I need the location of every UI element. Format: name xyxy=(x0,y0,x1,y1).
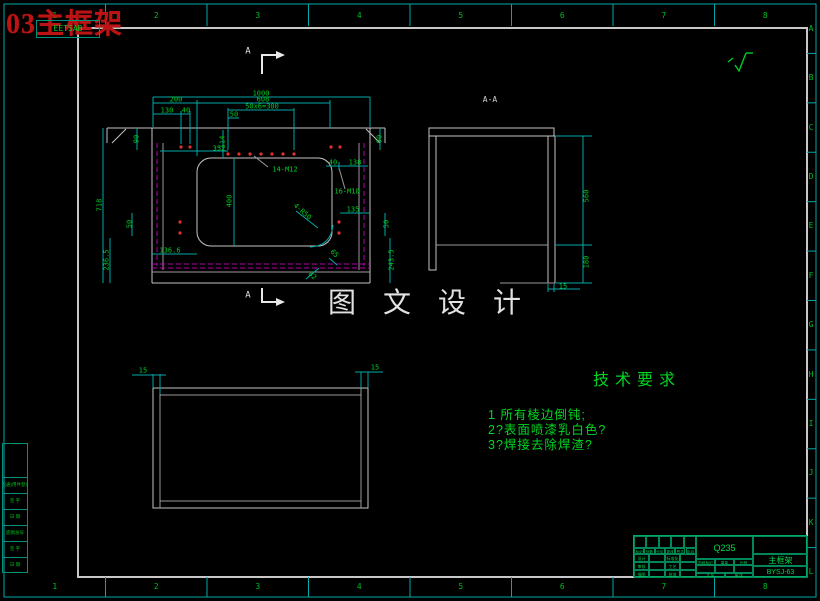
titleblock-cell xyxy=(671,536,683,548)
grid-ref: L xyxy=(809,568,814,576)
dim-label: 90 xyxy=(134,135,141,143)
dim-label: 40 xyxy=(329,160,337,167)
titleblock-cell xyxy=(659,536,671,548)
grid-ref: 7 xyxy=(661,583,666,591)
dim-label: 180 xyxy=(584,256,591,269)
titleblock-cell: 描图 xyxy=(634,570,649,578)
bottom-view xyxy=(132,372,383,508)
titleblock-cell xyxy=(649,562,665,570)
grid-ref: 2 xyxy=(154,583,159,591)
grid-ref: 7 xyxy=(661,12,666,20)
dim-label: A-A xyxy=(483,96,497,104)
titleblock-cell xyxy=(646,536,658,548)
titleblock-cell: 第 张 xyxy=(725,573,754,578)
dim-label: 50 xyxy=(230,112,238,119)
dim-label: 15 xyxy=(139,368,147,375)
titleblock-cell: 标准化 xyxy=(665,554,680,562)
dim-label: 40 xyxy=(182,108,190,115)
cut-arrow-bottom xyxy=(262,288,285,306)
grid-ref: 6 xyxy=(560,583,565,591)
titleblock-cell xyxy=(649,570,665,578)
grid-ref: 3 xyxy=(255,12,260,20)
dim-label: 200 xyxy=(170,97,183,104)
titleblock-cell xyxy=(680,554,696,562)
titleblock-cell xyxy=(684,536,696,548)
drawing-sheet: 10002006081304050x6=30050114909035214-M1… xyxy=(0,0,820,601)
dim-label: 236.5 xyxy=(104,249,111,270)
dim-label: 16-M10 xyxy=(334,189,359,196)
titleblock-cell xyxy=(715,565,734,573)
dim-label: 15 xyxy=(559,284,567,291)
titleblock-cell xyxy=(649,554,665,562)
grid-ref: 4 xyxy=(357,12,362,20)
grid-ref: 2 xyxy=(154,12,159,20)
dim-label: 243.5 xyxy=(389,249,396,270)
part-name-cell: 主框架 xyxy=(753,554,808,566)
grid-ref: J xyxy=(809,469,814,477)
drawing-number-cell: BYSJ-63 xyxy=(753,566,808,578)
section-view xyxy=(429,128,592,292)
titleblock-cell: 工艺 xyxy=(665,562,680,570)
grid-ref: B xyxy=(809,74,814,82)
dim-label: 14-M12 xyxy=(272,167,297,174)
titleblock-cell xyxy=(734,565,753,573)
dim-label: 15 xyxy=(371,365,379,372)
dim-label: A xyxy=(245,48,250,57)
grid-ref: A xyxy=(809,25,814,33)
titleblock-cell xyxy=(634,536,646,548)
strip-cell: 借(通)用件登记 xyxy=(3,477,27,493)
dim-label: 50x6=300 xyxy=(245,104,279,111)
titleblock-cell xyxy=(680,570,696,578)
dim-label: 50 xyxy=(384,220,391,228)
grid-ref: E xyxy=(809,222,814,230)
grid-ref: 8 xyxy=(763,583,768,591)
dim-label: 50 xyxy=(127,220,134,228)
titleblock-cell xyxy=(680,562,696,570)
watermark-text: 图 文 设 计 xyxy=(328,281,531,321)
grid-ref: D xyxy=(809,173,814,181)
titleblock-cell: 批准 xyxy=(665,570,680,578)
roughness-icon xyxy=(728,53,753,71)
strip-cell: 日 期 xyxy=(3,557,27,573)
dim-label: 138 xyxy=(349,160,362,167)
technical-requirements: 技术要求 1 所有棱边倒钝; 2?表面喷漆乳白色? 3?焊接去除焊渣? xyxy=(488,366,681,453)
dim-label: 90 xyxy=(377,135,384,143)
grid-ref: 5 xyxy=(458,583,463,591)
dim-label: 400 xyxy=(227,195,234,208)
titleblock-cell: 设计 xyxy=(634,554,649,562)
grid-ref: 8 xyxy=(763,12,768,20)
material-cell: Q235 xyxy=(696,536,753,559)
left-margin-strip: 借(通)用件登记签 字日 期底图总号签 字日 期 xyxy=(2,443,28,573)
strip-cell: 日 期 xyxy=(3,509,27,525)
grid-ref: C xyxy=(809,124,814,132)
dim-label: A xyxy=(245,292,250,301)
grid-ref: H xyxy=(809,371,814,379)
titleblock-cell: 审核 xyxy=(634,562,649,570)
grid-ref: 3 xyxy=(255,583,260,591)
grid-ref: K xyxy=(809,519,814,527)
titleblock-cell xyxy=(696,565,715,573)
dim-label: 130 xyxy=(161,108,174,115)
tech-req-item: 1 所有棱边倒钝; xyxy=(488,408,681,423)
dim-label: 352 xyxy=(213,146,226,153)
cut-arrow-top xyxy=(262,51,285,74)
titleblock-cell xyxy=(753,536,808,554)
dim-label: 136.6 xyxy=(159,248,180,255)
tech-req-item: 2?表面喷漆乳白色? xyxy=(488,423,681,438)
titleblock-cell: 共 张 xyxy=(696,573,725,578)
dim-label: 718 xyxy=(97,199,104,212)
dim-label: 135 xyxy=(347,207,360,214)
tech-req-item: 3?焊接去除焊渣? xyxy=(488,438,681,453)
grid-ref: I xyxy=(809,420,814,428)
grid-ref: 1 xyxy=(52,583,57,591)
strip-cell: 签 字 xyxy=(3,541,27,557)
title-block: 标记处数分区更改文件号签名年月日设计标准化审核工艺描图批准Q235阶段标记重量比… xyxy=(633,535,807,577)
hole-markers xyxy=(178,145,341,234)
grid-ref: G xyxy=(809,321,814,329)
strip-cell: 签 字 xyxy=(3,493,27,509)
dim-label: 560 xyxy=(584,190,591,203)
grid-ref: 4 xyxy=(357,583,362,591)
grid-ref: 5 xyxy=(458,12,463,20)
grid-ref: 6 xyxy=(560,12,565,20)
stamp-box: EETSAB xyxy=(36,20,100,38)
strip-cell: 底图总号 xyxy=(3,525,27,541)
grid-ref: F xyxy=(809,272,814,280)
tech-req-title: 技术要求 xyxy=(593,366,681,390)
